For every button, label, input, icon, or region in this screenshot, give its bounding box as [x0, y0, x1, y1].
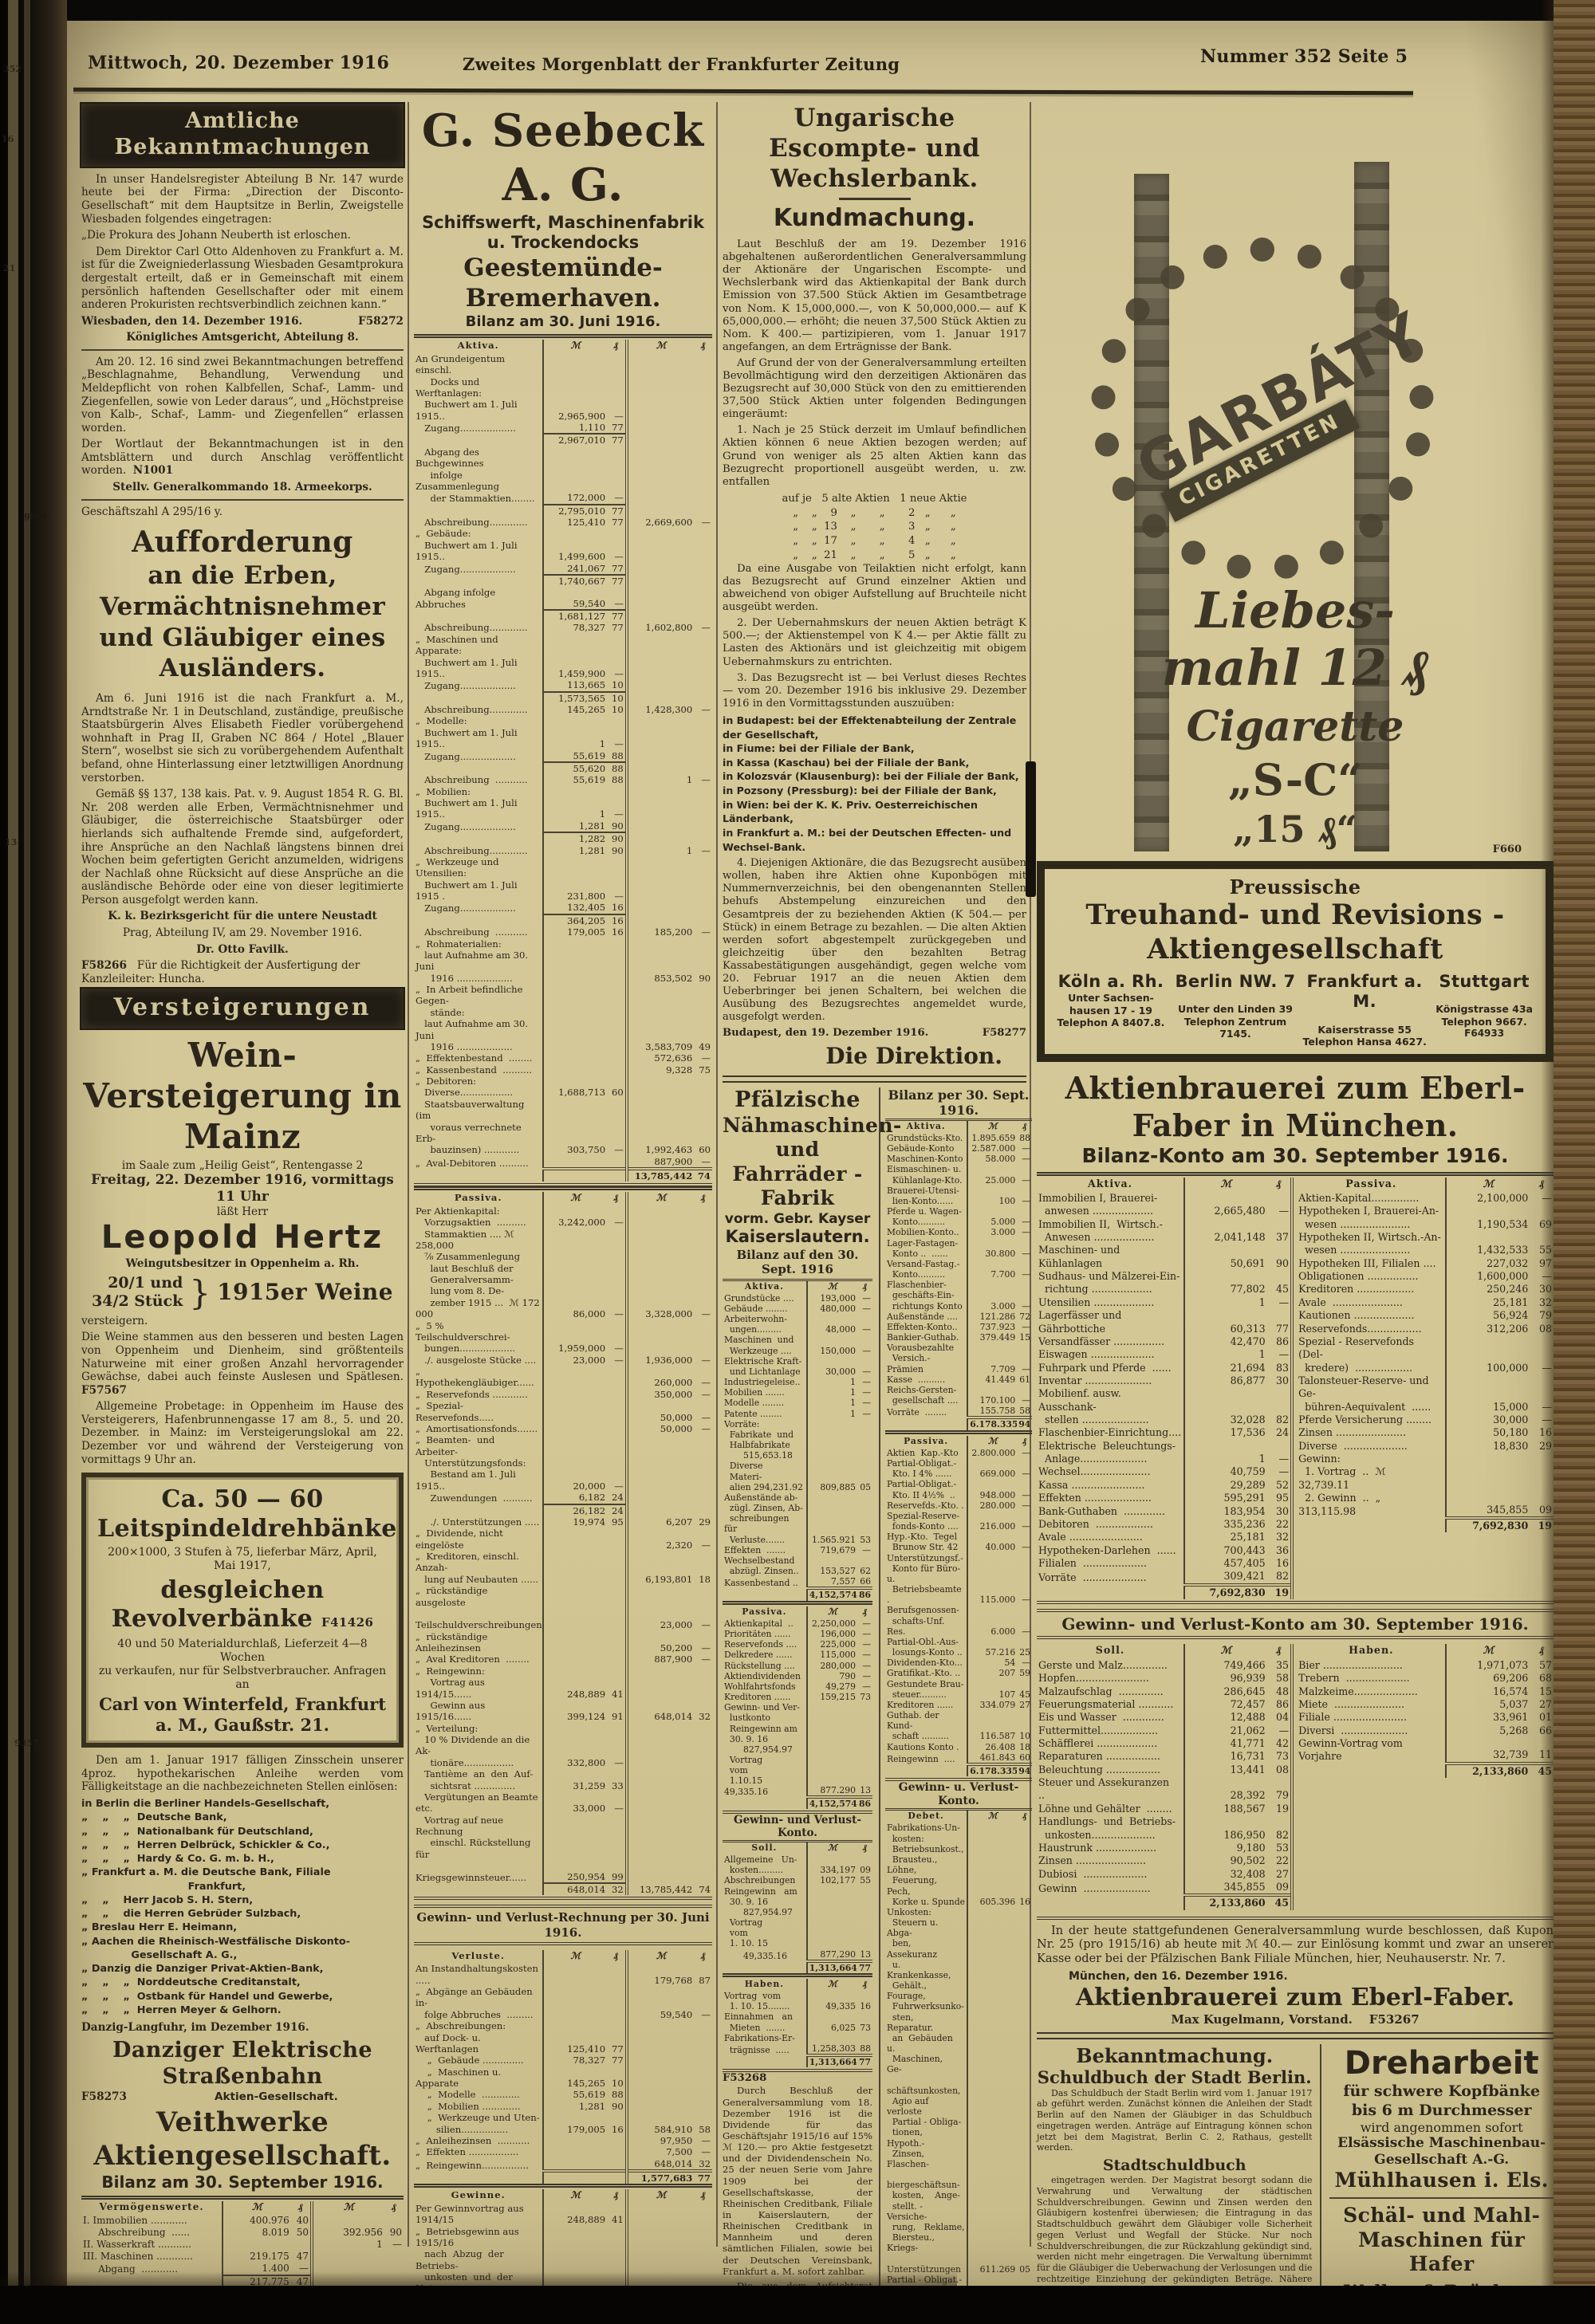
dreharbeit-title: Dreharbeit	[1329, 2044, 1554, 2083]
notice-paragraph: Am 20. 12. 16 sind zwei Bekanntmachungen…	[81, 356, 404, 435]
lathe-ad-line2: desgleichen Revolverbänke F41426	[97, 1576, 388, 1634]
brewery-column: Bilanz per 30. Sept. 1916. Aktiva.ℳ₰Grun…	[879, 1087, 1032, 2324]
ink-blot	[1026, 761, 1036, 897]
section-header-versteigerungen: Versteigerungen	[81, 989, 404, 1028]
court-detail: Prag, Abteilung IV, am 29. November 1916…	[81, 926, 404, 940]
brewery-debit-table: Debet.ℳ₰Fabrikations-Un- kosten: Betrieb…	[885, 1811, 1032, 2324]
veithwerke-bilanz-date: Bilanz am 30. September 1916.	[81, 2173, 404, 2192]
dreharbeit-city: Mühlhausen i. Els.	[1329, 2169, 1554, 2193]
seebeck-losses-table: Verluste.ℳ₰ℳ₰An Instandhaltungskosten ..…	[414, 1950, 712, 2184]
pfalz-title4: vorm. Gebr. Kayser	[723, 1211, 872, 1228]
veithwerke-title: Veithwerke Aktiengesellschaft.	[81, 2106, 404, 2173]
pfalz-code: F53268	[723, 2072, 872, 2085]
army-signature: Stellv. Generalkommando 18. Armeekorps.	[81, 481, 404, 494]
pfalz-assets-table: Aktiva.ℳ₰Grundstücke ....193,000—Gebäude…	[723, 1281, 872, 1601]
edge-fragment: 352	[3, 64, 22, 74]
dreharbeit-sub3: wird angenommen sofort	[1329, 2120, 1554, 2136]
machine-ads-column: Dreharbeit für schwere Kopfbänke bis 6 m…	[1320, 2044, 1554, 2324]
wine-lot-line: 20/1 und34/2 Stück } 1915er Weine	[81, 1272, 404, 1313]
garbaty-line1: Liebes-	[1037, 580, 1554, 641]
lathe-ad-contact: Carl von Winterfeld, Frankfurt a. M., Ga…	[97, 1694, 388, 1735]
eberl-credit-table: Haben.ℳ₰Bier .........................1,…	[1290, 1644, 1554, 1909]
kundmachung-p3: 1. Nach je 25 Stück derzeit im Umlauf be…	[723, 424, 1026, 488]
kundmachung-p7: 4. Diejenigen Aktionäre, die das Bezugsr…	[723, 857, 1026, 1024]
lathe-ad-title: Ca. 50 — 60 Leitspindeldrehbänke	[97, 1485, 388, 1543]
dreharbeit-company2: Gesellschaft A.-G.	[1329, 2152, 1554, 2169]
tram-company-name: Danziger Elektrische Straßenbahn	[81, 2038, 404, 2090]
seebeck-pl-title: Gewinn- und Verlust-Rechnung per 30. Jun…	[414, 1905, 712, 1945]
lathe-ad-spec: 200×1000, 3 Stufen à 75, lieferbar März,…	[97, 1546, 388, 1573]
summons-paragraph: Am 6. Juni 1916 ist die nach Frankfurt a…	[81, 692, 404, 784]
treuhand-line1: Treuhand- und Revisions - Aktiengesellsc…	[1053, 899, 1538, 966]
notice-paragraph: Der Wortlaut der Bekanntmachungen ist in…	[81, 438, 404, 478]
seebeck-title: G. Seebeck A. G.	[414, 104, 712, 213]
schuldbuch-column: Bekanntmachung. Schuldbuch der Stadt Ber…	[1037, 2044, 1312, 2324]
eberl-vorstand: Max Kugelmann, Vorstand. F53267	[1037, 2012, 1554, 2027]
notice-paragraph: In unser Handelsregister Abteilung B Nr.…	[81, 173, 404, 226]
previous-page-edge-2	[24, 0, 30, 2324]
garbaty-line4: „S-C“	[1037, 754, 1554, 807]
newspaper-page: { "header": { "date": "Mittwoch, 20. Dez…	[0, 0, 1595, 2324]
kundmachung-p5: 2. Der Uebernahmskurs der neuen Aktien b…	[723, 617, 1026, 668]
kundmachung-p2: Auf Grund der von der Generalversammlung…	[723, 357, 1026, 421]
edge-fragment: 13	[5, 837, 17, 847]
column-seebeck: G. Seebeck A. G. Schiffswerft, Maschinen…	[414, 104, 712, 2324]
coupon-paragraph: Den am 1. Januar 1917 fälligen Zinsschei…	[81, 1754, 404, 1794]
seebeck-liabilities-table: Passiva.ℳ₰ℳ₰Per Aktienkapital: Vorzugsak…	[414, 1186, 712, 1900]
wine-auction-lede: läßt Herr	[81, 1205, 404, 1219]
masthead: Mittwoch, 20. Dezember 1916 Zweites Morg…	[88, 46, 1412, 85]
pfalz-credit-table: Haben.ℳ₰Vortrag vom 1. 10. 15........49,…	[723, 1973, 872, 2072]
notice-paragraph: Dem Direktor Carl Otto Aldenhoven zu Fra…	[81, 246, 404, 312]
column-right: GARBÁTY CIGARETTEN Liebes- mahl 12 ₰ Cig…	[1037, 102, 1554, 2324]
stadtschuldbuch-title: Stadtschuldbuch	[1037, 2157, 1312, 2175]
wine-paragraph: Allgemeine Probetage: in Oppenheim im Ha…	[81, 1400, 404, 1466]
treuhand-line0: Preussische	[1053, 875, 1538, 899]
pfalz-liabilities-table: Passiva.ℳ₰Aktienkapital ..2,250,000—Prio…	[723, 1601, 872, 1814]
wine-vintage: 1915er Weine	[217, 1279, 393, 1306]
dreharbeit-sub2: bis 6 m Durchmesser	[1329, 2102, 1554, 2120]
garbaty-line3: Cigarette	[1037, 702, 1554, 752]
eberl-title: Aktienbrauerei zum Eberl-Faber in Münche…	[1037, 1070, 1554, 1144]
column-hungarian-bank: Ungarische Escompte- und Wechslerbank. K…	[723, 104, 1026, 2324]
bottom-split: Bekanntmachung. Schuldbuch der Stadt Ber…	[1037, 2044, 1554, 2324]
bank-title: Ungarische Escompte- und Wechslerbank.	[723, 104, 1026, 194]
eberl-assets-table: Aktiva.ℳ₰Immobilien I, Brauerei- anwesen…	[1037, 1178, 1290, 1600]
edge-fragment: 9357	[14, 1738, 39, 1748]
eberl-debit-table: Soll.ℳ₰Gerste und Malz..............749,…	[1037, 1644, 1290, 1909]
section-header-amtliche: Amtliche Bekanntmachungen	[81, 104, 404, 167]
notice-paragraph: „Die Prokura des Johann Neuberth ist erl…	[81, 229, 404, 242]
pfalz-bilanz-date: Bilanz auf den 30. Sept. 1916	[723, 1248, 872, 1281]
share-ratio-table: auf je 5 alte Aktien 1 neue Aktie„ „ 9 „…	[723, 492, 1026, 563]
court-signature: Königliches Amtsgericht, Abteilung 8.	[81, 331, 404, 344]
column-rule-1	[408, 102, 409, 2247]
lathe-ad-detail: 40 und 50 Materialdurchlaß, Lieferzeit 4…	[97, 1638, 388, 1665]
auctioneer-name: Leopold Hertz	[81, 1218, 404, 1257]
judge-name: Dr. Otto Favilk.	[81, 943, 404, 957]
wine-auction-title: Wein-Versteigerung in Mainz	[81, 1035, 404, 1158]
lathe-ad-detail2: zu verkaufen, nur für Selbstverbraucher.…	[97, 1665, 388, 1692]
pfalz-pl-title: Gewinn- und Verlust-Konto.	[723, 1814, 872, 1842]
eberl-bilanz-flex: Aktiva.ℳ₰Immobilien I, Brauerei- anwesen…	[1037, 1178, 1554, 1600]
split-columns: Pfälzische Nähmaschinen- und Fahrräder -…	[723, 1087, 1026, 2324]
auctioneer-desc: Weingutsbesitzer in Oppenheim a. Rh.	[81, 1257, 404, 1271]
treuhand-ad: Preussische Treuhand- und Revisions - Ak…	[1037, 861, 1554, 1062]
book-fore-edge	[1554, 0, 1595, 2324]
edge-fragment: 16	[2, 134, 14, 144]
kundmachung-p4: Da eine Ausgabe von Teilaktien nicht erf…	[723, 563, 1026, 614]
pfalz-title3: Fahrräder - Fabrik	[723, 1162, 872, 1211]
pfalz-column: Pfälzische Nähmaschinen- und Fahrräder -…	[723, 1087, 872, 2324]
budapest-dateline: Budapest, den 19. Dezember 1916.F58277	[723, 1027, 1026, 1040]
summons-paragraph: Gemäß §§ 137, 138 kais. Pat. v. 9. Augus…	[81, 788, 404, 906]
eberl-coupon-note: In der heute stattgefundenen Generalvers…	[1037, 1917, 1554, 1967]
brewery-liabilities-table: Passiva.ℳ₰Aktien Kap.-Kto2.800.000—Parti…	[885, 1430, 1032, 1782]
masthead-date: Mittwoch, 20. Dezember 1916	[88, 53, 389, 73]
seebeck-assets-table: Aktiva.ℳ₰ℳ₰An Grundeigentum einschl. Doc…	[414, 334, 712, 1186]
kundmachung-p6: 3. Das Bezugsrecht ist — bei Verlust die…	[723, 672, 1026, 710]
brace-glyph: }	[189, 1272, 211, 1313]
brewery-pl-title: Gewinn- u. Verlust-Konto.	[885, 1781, 1032, 1811]
treuhand-city: Berlin NW. 7 Unter den Linden 39 Telepho…	[1172, 972, 1298, 1048]
direktion-signature: Die Direktion.	[723, 1043, 1002, 1070]
pfalz-dividend-note: Durch Beschluß der Generalversammlung vo…	[723, 2085, 872, 2276]
treuhand-city: Stuttgart Königstrasse 43a Telephon 9667…	[1431, 972, 1538, 1048]
bekanntmachung-title: Bekanntmachung.	[1037, 2044, 1312, 2067]
tram-company-sub: F58273Aktien-Gesellschaft.	[81, 2090, 404, 2104]
previous-page-edge	[8, 0, 18, 2324]
edge-fragment: 21	[3, 263, 15, 273]
brewery-assets-table: Aktiva.ℳ₰Grundstücks-Kto.1.895.65988Gebä…	[885, 1121, 1032, 1430]
column-official-notices: Amtliche Bekanntmachungen In unser Hande…	[81, 104, 404, 2324]
pfalz-debit-table: Soll.ℳ₰Allgemeine Un- kosten.........334…	[723, 1842, 872, 1973]
eberl-place: München, den 16. Dezember 1916.	[1069, 1970, 1554, 1984]
seebeck-sub1: Schiffswerft, Maschinenfabrik u. Trocken…	[414, 213, 712, 254]
kundmachung-p1: Laut Beschluß der am 19. Dezember 1916 a…	[723, 238, 1026, 354]
court-name: K. k. Bezirksgericht für die untere Neus…	[81, 910, 404, 923]
eberl-signature: Aktienbrauerei zum Eberl-Faber.	[1037, 1984, 1554, 2013]
pfalz-title2: Nähmaschinen- und	[723, 1114, 872, 1162]
lathe-ad: Ca. 50 — 60 Leitspindeldrehbänke 200×100…	[81, 1473, 404, 1748]
certification: F58266 Für die Richtigkeit der Ausfertig…	[81, 959, 404, 985]
lot-counts: 20/1 und34/2 Stück	[92, 1274, 183, 1311]
schuldbuch-p1: Das Schuldbuch der Stadt Berlin wird vom…	[1037, 2088, 1312, 2154]
wine-auction-venue: im Saale zum „Heilig Geist“, Rentengasse…	[81, 1159, 404, 1173]
dreharbeit-company1: Elsässische Maschinenbau-	[1329, 2135, 1554, 2152]
eberl-pl-flex: Soll.ℳ₰Gerste und Malz..............749,…	[1037, 1644, 1554, 1909]
table-surface	[0, 2286, 1595, 2324]
pfalz-title1: Pfälzische	[723, 1087, 872, 1114]
garbaty-ad: GARBÁTY CIGARETTEN Liebes- mahl 12 ₰ Cig…	[1037, 102, 1554, 861]
pfalz-title5: Kaiserslautern.	[723, 1227, 872, 1248]
eberl-bilanz-date: Bilanz-Konto am 30. September 1916.	[1037, 1144, 1554, 1169]
treuhand-city: Frankfurt a. M. Kaiserstrasse 55 Telepho…	[1302, 972, 1428, 1048]
garbaty-line5: „15 ₰“	[1037, 807, 1554, 851]
kundmachung-title: Kundmachung.	[723, 204, 1026, 234]
schuldbuch-title: Schuldbuch der Stadt Berlin.	[1037, 2067, 1312, 2088]
schael-title1: Schäl- und Mahl-	[1329, 2204, 1554, 2228]
notice-date: Wiesbaden, den 14. Dezember 1916.	[81, 315, 302, 328]
masthead-title: Zweites Morgenblatt der Frankfurter Zeit…	[463, 54, 900, 74]
auction-verb: versteigern.	[81, 1315, 404, 1328]
seebeck-bilanz-date: Bilanz am 30. Juni 1916.	[414, 313, 712, 331]
case-number: Geschäftszahl A 295/16 y.	[81, 505, 404, 519]
eberl-bilanz-tables: Aktiva.ℳ₰Immobilien I, Brauerei- anwesen…	[1037, 1172, 1554, 1605]
eberl-pl-title: Gewinn- und Verlust-Konto am 30. Septemb…	[1037, 1609, 1554, 1639]
schael-title2: Maschinen für Hafer	[1329, 2228, 1554, 2277]
redemption-bank-list: in Berlin die Berliner Handels-Gesellsch…	[81, 1797, 404, 2017]
seebeck-sub2: Geestemünde-Bremerhaven.	[414, 254, 712, 314]
dreharbeit-sub1: für schwere Kopfbänke	[1329, 2082, 1554, 2101]
garbaty-code: F660	[1493, 843, 1522, 856]
garbaty-line2: mahl 12 ₰	[1037, 638, 1554, 698]
masthead-page-number: Nummer 352 Seite 5	[1200, 46, 1408, 67]
column-rule-2	[716, 102, 718, 2247]
eberl-liabilities-table: Passiva.ℳ₰Aktien-Kapital...............2…	[1290, 1178, 1554, 1600]
wine-auction-date: Freitag, 22. Dezember 1916, vormittags 1…	[81, 1172, 404, 1205]
summons-title: Aufforderung an die Erben, Vermächtnisne…	[81, 525, 404, 684]
treuhand-cities: Köln a. Rh. Unter Sachsen- hausen 17 - 1…	[1053, 972, 1538, 1048]
subscription-places: in Budapest: bei der Effektenabteilung d…	[723, 714, 1026, 854]
wine-paragraph: Die Weine stammen aus den besseren und b…	[81, 1331, 404, 1397]
filing-code: F58272	[358, 315, 404, 328]
brewery-bilanz-date: Bilanz per 30. Sept. 1916.	[885, 1087, 1032, 1121]
danzig-dateline: Danzig-Langfuhr, im Dezember 1916.	[81, 2021, 404, 2035]
treuhand-city: Köln a. Rh. Unter Sachsen- hausen 17 - 1…	[1053, 972, 1169, 1048]
edge-fragment: grüh.	[24, 510, 50, 521]
